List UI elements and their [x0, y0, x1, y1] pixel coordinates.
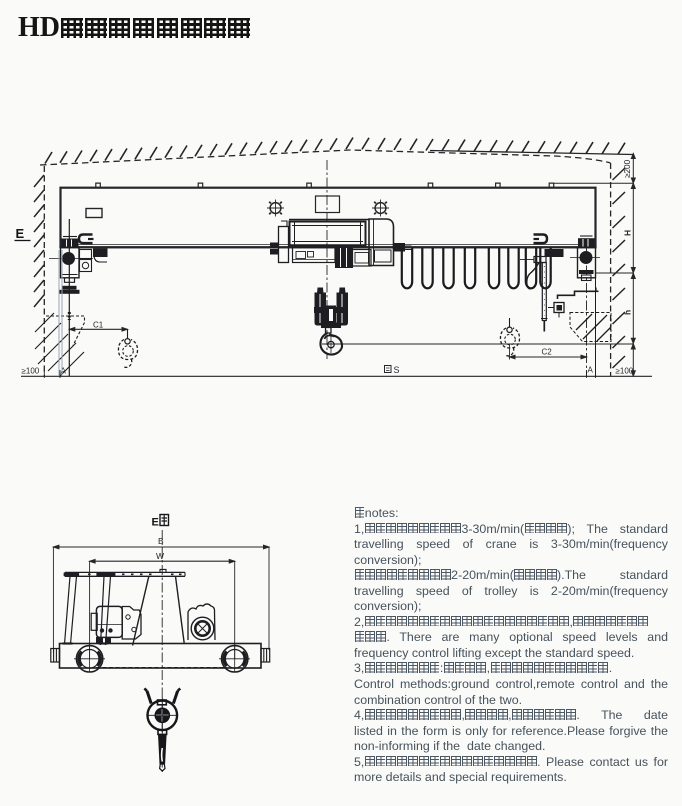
svg-text:E: E	[16, 226, 25, 241]
svg-text:A: A	[588, 366, 594, 375]
svg-text:≥200: ≥200	[623, 159, 632, 178]
svg-text:≥100: ≥100	[22, 367, 40, 376]
svg-text:S: S	[394, 365, 400, 375]
svg-text:≥100: ≥100	[616, 367, 634, 376]
svg-text:h: h	[623, 310, 633, 315]
svg-text:H: H	[623, 230, 633, 236]
svg-text:C2: C2	[542, 348, 553, 357]
svg-text:E: E	[152, 517, 159, 529]
svg-text:C1: C1	[93, 321, 104, 330]
svg-text:W: W	[156, 551, 164, 561]
svg-text:B: B	[158, 536, 164, 546]
